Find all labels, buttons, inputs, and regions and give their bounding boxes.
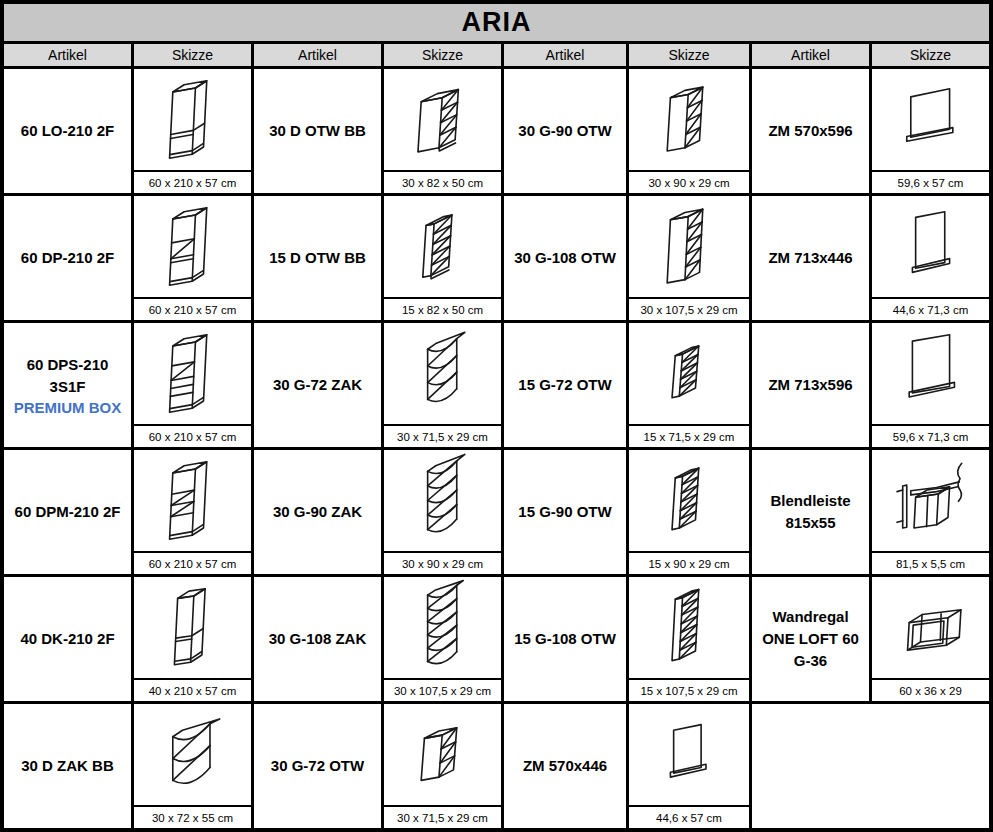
product-sketch	[384, 450, 501, 551]
skizze-cell: 30 x 90 x 29 cm	[384, 450, 501, 574]
product-sketch	[872, 450, 989, 551]
product-sketch	[629, 323, 749, 424]
product-code: 30 G-108 ZAK	[269, 628, 367, 650]
product-dims: 15 x 90 x 29 cm	[629, 551, 749, 574]
open-wall-shelf-unit-narrow-sketch	[636, 452, 742, 549]
open-wall-shelf-unit-sketch	[636, 198, 742, 295]
catalog-sheet: ARIA Artikel Skizze Artikel Skizze Artik…	[0, 0, 993, 832]
product-code: 30 G-90 ZAK	[273, 501, 362, 523]
product-code: 30 D OTW BB	[269, 120, 366, 142]
product-note: PREMIUM BOX	[14, 399, 122, 416]
product-dims: 60 x 210 x 57 cm	[134, 551, 251, 574]
product-dims: 81,5 x 5,5 cm	[872, 551, 989, 574]
appliance-front-panel-sketch	[636, 706, 742, 803]
corner-wall-shelf-unit-sketch	[390, 325, 496, 422]
artikel-cell: 60 DP-210 2F	[4, 196, 131, 320]
column-header-artikel: Artikel	[254, 44, 381, 66]
skizze-cell: 59,6 x 57 cm	[872, 69, 989, 193]
artikel-cell: 15 G-108 OTW	[504, 577, 626, 701]
tall-microwave-housing-sketch	[140, 452, 246, 549]
product-code: 30 G-108 OTW	[514, 247, 616, 269]
open-frame-wall-shelf-sketch	[878, 579, 984, 676]
artikel-cell: 30 D ZAK BB	[4, 704, 131, 828]
page-title: ARIA	[4, 4, 989, 41]
product-sketch	[629, 577, 749, 678]
product-code: ZM 713x596	[768, 374, 852, 396]
product-dims: 30 x 90 x 29 cm	[384, 551, 501, 574]
product-sketch	[134, 69, 251, 170]
skizze-cell: 15 x 82 x 50 cm	[384, 196, 501, 320]
skizze-cell: 30 x 90 x 29 cm	[629, 69, 749, 193]
skizze-cell: 40 x 210 x 57 cm	[134, 577, 251, 701]
skizze-cell: 59,6 x 71,3 cm	[872, 323, 989, 447]
product-sketch	[134, 704, 251, 805]
product-sketch	[629, 196, 749, 297]
skizze-cell: 60 x 36 x 29	[872, 577, 989, 701]
column-header-artikel: Artikel	[4, 44, 131, 66]
corner-base-shelf-unit-sketch	[140, 706, 246, 803]
open-wall-shelf-unit-narrow-sketch	[636, 325, 742, 422]
product-dims: 44,6 x 71,3 cm	[872, 297, 989, 320]
skizze-cell: 15 x 71,5 x 29 cm	[629, 323, 749, 447]
artikel-cell: 60 DPS-210 3S1F PREMIUM BOX	[4, 323, 131, 447]
product-dims: 30 x 71,5 x 29 cm	[384, 424, 501, 447]
product-sketch	[629, 704, 749, 805]
product-dims: 30 x 72 x 55 cm	[134, 805, 251, 828]
product-dims: 60 x 36 x 29	[872, 678, 989, 701]
filler-strip-with-cabinet-sketch	[878, 452, 984, 549]
skizze-cell: 15 x 90 x 29 cm	[629, 450, 749, 574]
product-dims: 60 x 210 x 57 cm	[134, 297, 251, 320]
product-dims: 15 x 71,5 x 29 cm	[629, 424, 749, 447]
corner-wall-shelf-unit-sketch	[390, 579, 496, 676]
column-header-artikel: Artikel	[752, 44, 869, 66]
skizze-cell: 30 x 82 x 50 cm	[384, 69, 501, 193]
product-sketch	[134, 577, 251, 678]
artikel-cell: 30 G-108 OTW	[504, 196, 626, 320]
skizze-cell: 30 x 71,5 x 29 cm	[384, 704, 501, 828]
column-header-artikel: Artikel	[504, 44, 626, 66]
product-sketch	[134, 450, 251, 551]
open-wall-shelf-unit-narrow-sketch	[636, 579, 742, 676]
column-header-skizze: Skizze	[629, 44, 749, 66]
product-sketch	[134, 196, 251, 297]
product-sketch	[384, 704, 501, 805]
product-dims: 60 x 210 x 57 cm	[134, 170, 251, 193]
product-sketch	[384, 69, 501, 170]
product-code: 15 D OTW BB	[269, 247, 366, 269]
product-sketch	[872, 69, 989, 170]
empty-cell	[752, 704, 989, 828]
artikel-cell: 15 G-90 OTW	[504, 450, 626, 574]
artikel-cell: 60 LO-210 2F	[4, 69, 131, 193]
product-code: 30 G-72 OTW	[271, 755, 364, 777]
artikel-cell: ZM 713x596	[752, 323, 869, 447]
tall-cabinet-2-doors-sketch	[140, 71, 246, 168]
skizze-cell: 81,5 x 5,5 cm	[872, 450, 989, 574]
artikel-cell: Wandregal ONE LOFT 60 G-36	[752, 577, 869, 701]
artikel-cell: 30 G-90 ZAK	[254, 450, 381, 574]
skizze-cell: 30 x 107,5 x 29 cm	[629, 196, 749, 320]
product-code: 15 G-90 OTW	[518, 501, 611, 523]
appliance-front-panel-sketch	[878, 71, 984, 168]
appliance-front-panel-sketch	[878, 198, 984, 295]
product-sketch	[872, 577, 989, 678]
artikel-cell: ZM 570x596	[752, 69, 869, 193]
product-code: 30 D ZAK BB	[21, 755, 114, 777]
open-wall-shelf-unit-sketch	[636, 71, 742, 168]
tall-cabinet-2-doors-narrow-sketch	[140, 579, 246, 676]
product-dims: 60 x 210 x 57 cm	[134, 424, 251, 447]
product-dims: 15 x 107,5 x 29 cm	[629, 678, 749, 701]
product-dims: 30 x 82 x 50 cm	[384, 170, 501, 193]
product-code: Wandregal ONE LOFT 60 G-36	[755, 606, 866, 671]
product-sketch	[629, 450, 749, 551]
skizze-cell: 60 x 210 x 57 cm	[134, 196, 251, 320]
skizze-cell: 15 x 107,5 x 29 cm	[629, 577, 749, 701]
artikel-cell: 15 G-72 OTW	[504, 323, 626, 447]
skizze-cell: 60 x 210 x 57 cm	[134, 69, 251, 193]
product-sketch	[384, 323, 501, 424]
artikel-cell: Blendleiste 815x55	[752, 450, 869, 574]
product-dims: 30 x 107,5 x 29 cm	[384, 678, 501, 701]
appliance-front-panel-sketch	[878, 325, 984, 422]
product-dims: 15 x 82 x 50 cm	[384, 297, 501, 320]
corner-wall-shelf-unit-sketch	[390, 452, 496, 549]
product-dims: 59,6 x 71,3 cm	[872, 424, 989, 447]
catalog-table: Artikel Skizze Artikel Skizze Artikel Sk…	[4, 41, 989, 828]
skizze-cell: 60 x 210 x 57 cm	[134, 450, 251, 574]
product-dims: 40 x 210 x 57 cm	[134, 678, 251, 701]
product-sketch	[629, 69, 749, 170]
artikel-cell: 30 G-108 ZAK	[254, 577, 381, 701]
skizze-cell: 44,6 x 57 cm	[629, 704, 749, 828]
product-sketch	[384, 577, 501, 678]
product-dims: 59,6 x 57 cm	[872, 170, 989, 193]
skizze-cell: 60 x 210 x 57 cm	[134, 323, 251, 447]
product-code: 40 DK-210 2F	[20, 628, 114, 650]
artikel-cell: 60 DPM-210 2F	[4, 450, 131, 574]
product-code: 60 DPS-210 3S1F	[7, 354, 128, 398]
skizze-cell: 30 x 107,5 x 29 cm	[384, 577, 501, 701]
product-code: Blendleiste 815x55	[755, 490, 866, 534]
tall-oven-housing-sketch	[140, 198, 246, 295]
skizze-cell: 44,6 x 71,3 cm	[872, 196, 989, 320]
product-code: 15 G-108 OTW	[514, 628, 616, 650]
product-code: 60 LO-210 2F	[21, 120, 114, 142]
artikel-cell: 30 G-72 ZAK	[254, 323, 381, 447]
artikel-cell: ZM 570x446	[504, 704, 626, 828]
open-base-shelf-unit-sketch	[390, 71, 496, 168]
product-sketch	[384, 196, 501, 297]
product-code: 30 G-72 ZAK	[273, 374, 362, 396]
column-header-skizze: Skizze	[384, 44, 501, 66]
artikel-cell: 30 G-90 OTW	[504, 69, 626, 193]
open-wall-shelf-unit-sketch	[390, 706, 496, 803]
column-header-skizze: Skizze	[134, 44, 251, 66]
artikel-cell: 30 D OTW BB	[254, 69, 381, 193]
artikel-cell: 40 DK-210 2F	[4, 577, 131, 701]
product-sketch	[872, 323, 989, 424]
product-code: ZM 570x596	[768, 120, 852, 142]
product-code: 60 DPM-210 2F	[15, 501, 121, 523]
product-dims: 44,6 x 57 cm	[629, 805, 749, 828]
artikel-cell: 30 G-72 OTW	[254, 704, 381, 828]
product-dims: 30 x 107,5 x 29 cm	[629, 297, 749, 320]
product-sketch	[134, 323, 251, 424]
artikel-cell: ZM 713x446	[752, 196, 869, 320]
column-header-skizze: Skizze	[872, 44, 989, 66]
product-dims: 30 x 71,5 x 29 cm	[384, 805, 501, 828]
product-code: 60 DP-210 2F	[21, 247, 114, 269]
skizze-cell: 30 x 71,5 x 29 cm	[384, 323, 501, 447]
skizze-cell: 30 x 72 x 55 cm	[134, 704, 251, 828]
open-base-shelf-unit-narrow-sketch	[390, 198, 496, 295]
tall-oven-housing-drawers-sketch	[140, 325, 246, 422]
product-code: 15 G-72 OTW	[518, 374, 611, 396]
product-dims: 30 x 90 x 29 cm	[629, 170, 749, 193]
product-sketch	[872, 196, 989, 297]
product-code: 30 G-90 OTW	[518, 120, 611, 142]
product-code: ZM 570x446	[523, 755, 607, 777]
product-code: ZM 713x446	[768, 247, 852, 269]
artikel-cell: 15 D OTW BB	[254, 196, 381, 320]
